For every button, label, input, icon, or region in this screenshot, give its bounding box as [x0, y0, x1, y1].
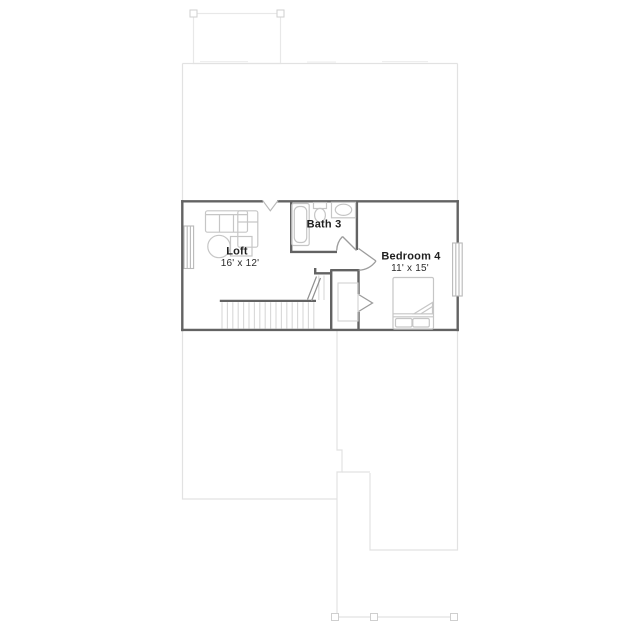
porch-post	[332, 614, 339, 621]
bath-label: Bath 3	[307, 220, 342, 231]
bedroom-dimensions: 11' x 15'	[391, 264, 429, 274]
bath-door	[337, 237, 357, 251]
floorplan-canvas: Loft 16' x 12' Bath 3 Bedroom 4 11' x 15…	[0, 0, 640, 640]
bath-door-swing	[337, 237, 343, 251]
bedroom-door-swing	[359, 261, 376, 270]
porch-posts	[190, 10, 458, 621]
first-floor-ghost-outline	[183, 10, 458, 621]
porch-post	[277, 10, 284, 17]
closet-bifold-door	[359, 295, 373, 312]
upper-porch-outline	[194, 14, 281, 64]
pillow	[396, 319, 413, 328]
porch-post	[371, 614, 378, 621]
pillow	[413, 319, 430, 328]
bed	[393, 278, 434, 330]
loft-dimensions: 16' x 12'	[221, 259, 259, 269]
bedroom-furniture	[393, 278, 434, 330]
wall-notch	[263, 200, 279, 211]
loft-window	[184, 226, 194, 269]
bedroom-door-leaf	[359, 249, 376, 262]
porch-post	[451, 614, 458, 621]
bedroom-label: Bedroom 4	[381, 252, 440, 263]
bedroom-window	[453, 243, 463, 296]
closet-outline	[338, 283, 358, 321]
sectional-sofa	[206, 211, 258, 247]
loft-label: Loft	[226, 247, 248, 258]
sink-vanity	[332, 202, 356, 218]
bath-door-leaf	[343, 237, 357, 251]
floorplan-drawing	[0, 0, 640, 640]
bedroom-door	[359, 249, 376, 271]
porch-post	[190, 10, 197, 17]
